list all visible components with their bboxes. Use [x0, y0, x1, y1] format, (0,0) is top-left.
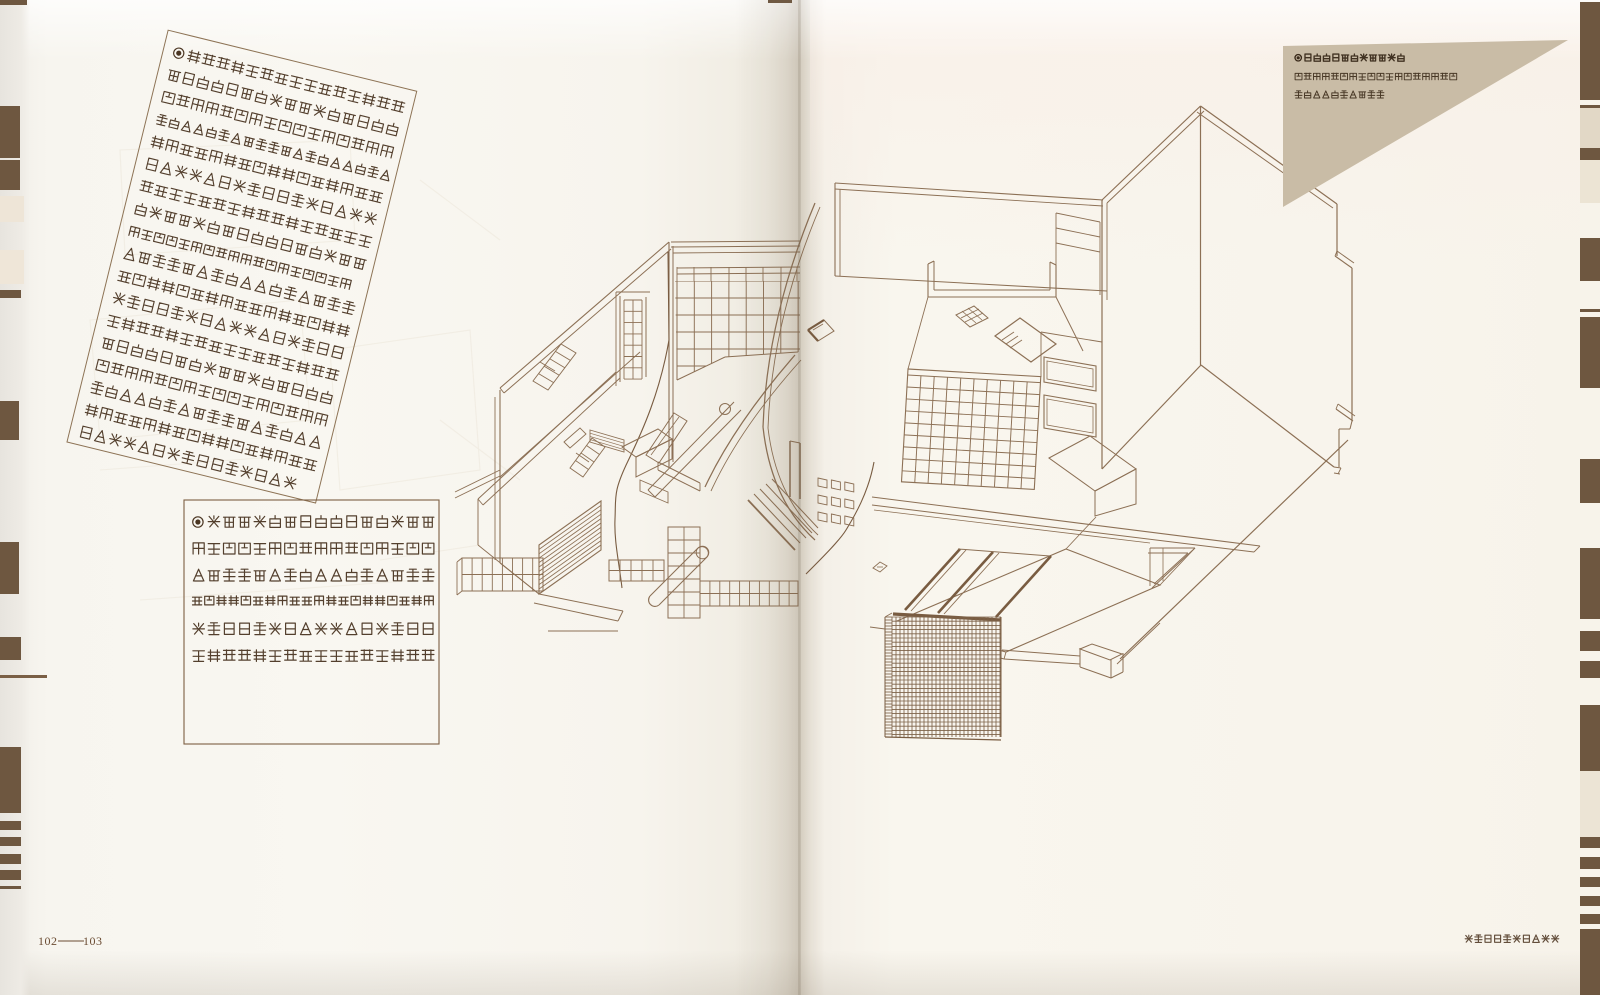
- svg-text:103: 103: [83, 934, 103, 948]
- svg-text:102: 102: [38, 934, 58, 948]
